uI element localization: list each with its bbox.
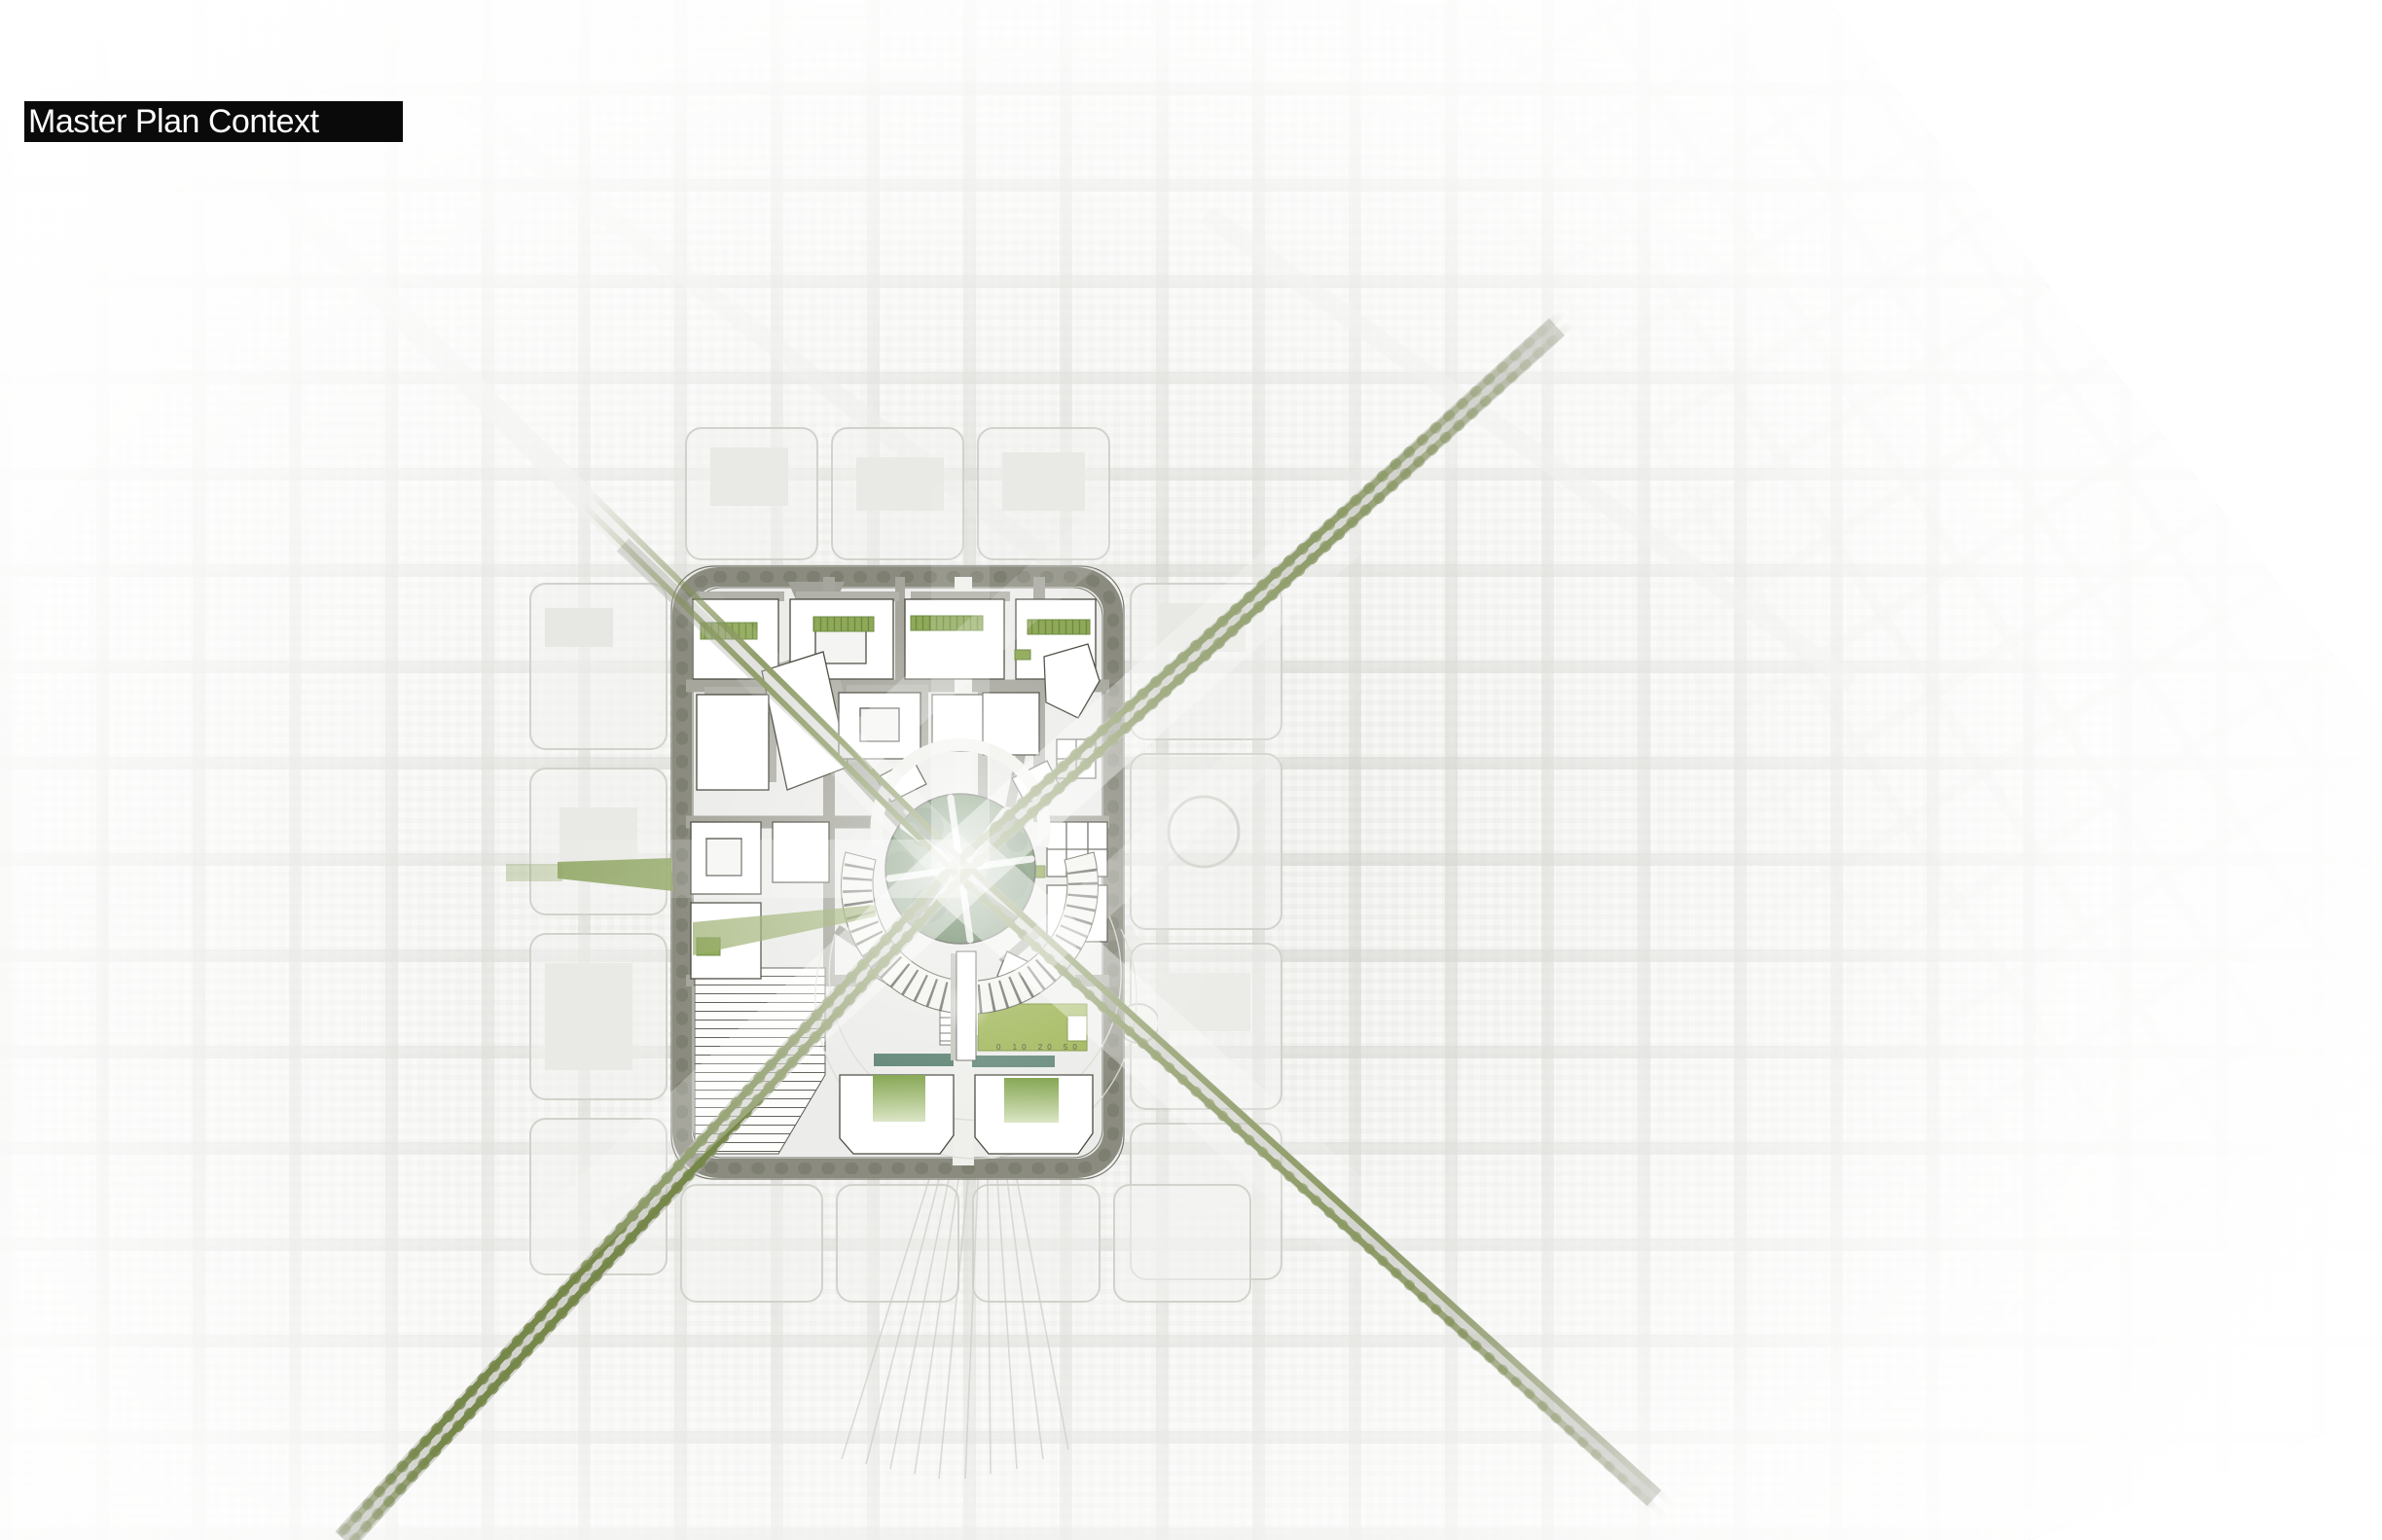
master-plan-context-slide: 0 10 20 50: [0, 0, 2382, 1540]
page-title: Master Plan Context: [24, 103, 319, 141]
central-glow: [668, 616, 1252, 1122]
master-plan-drawing: 0 10 20 50: [0, 0, 2382, 1540]
page-title-bar: Master Plan Context: [24, 101, 403, 142]
